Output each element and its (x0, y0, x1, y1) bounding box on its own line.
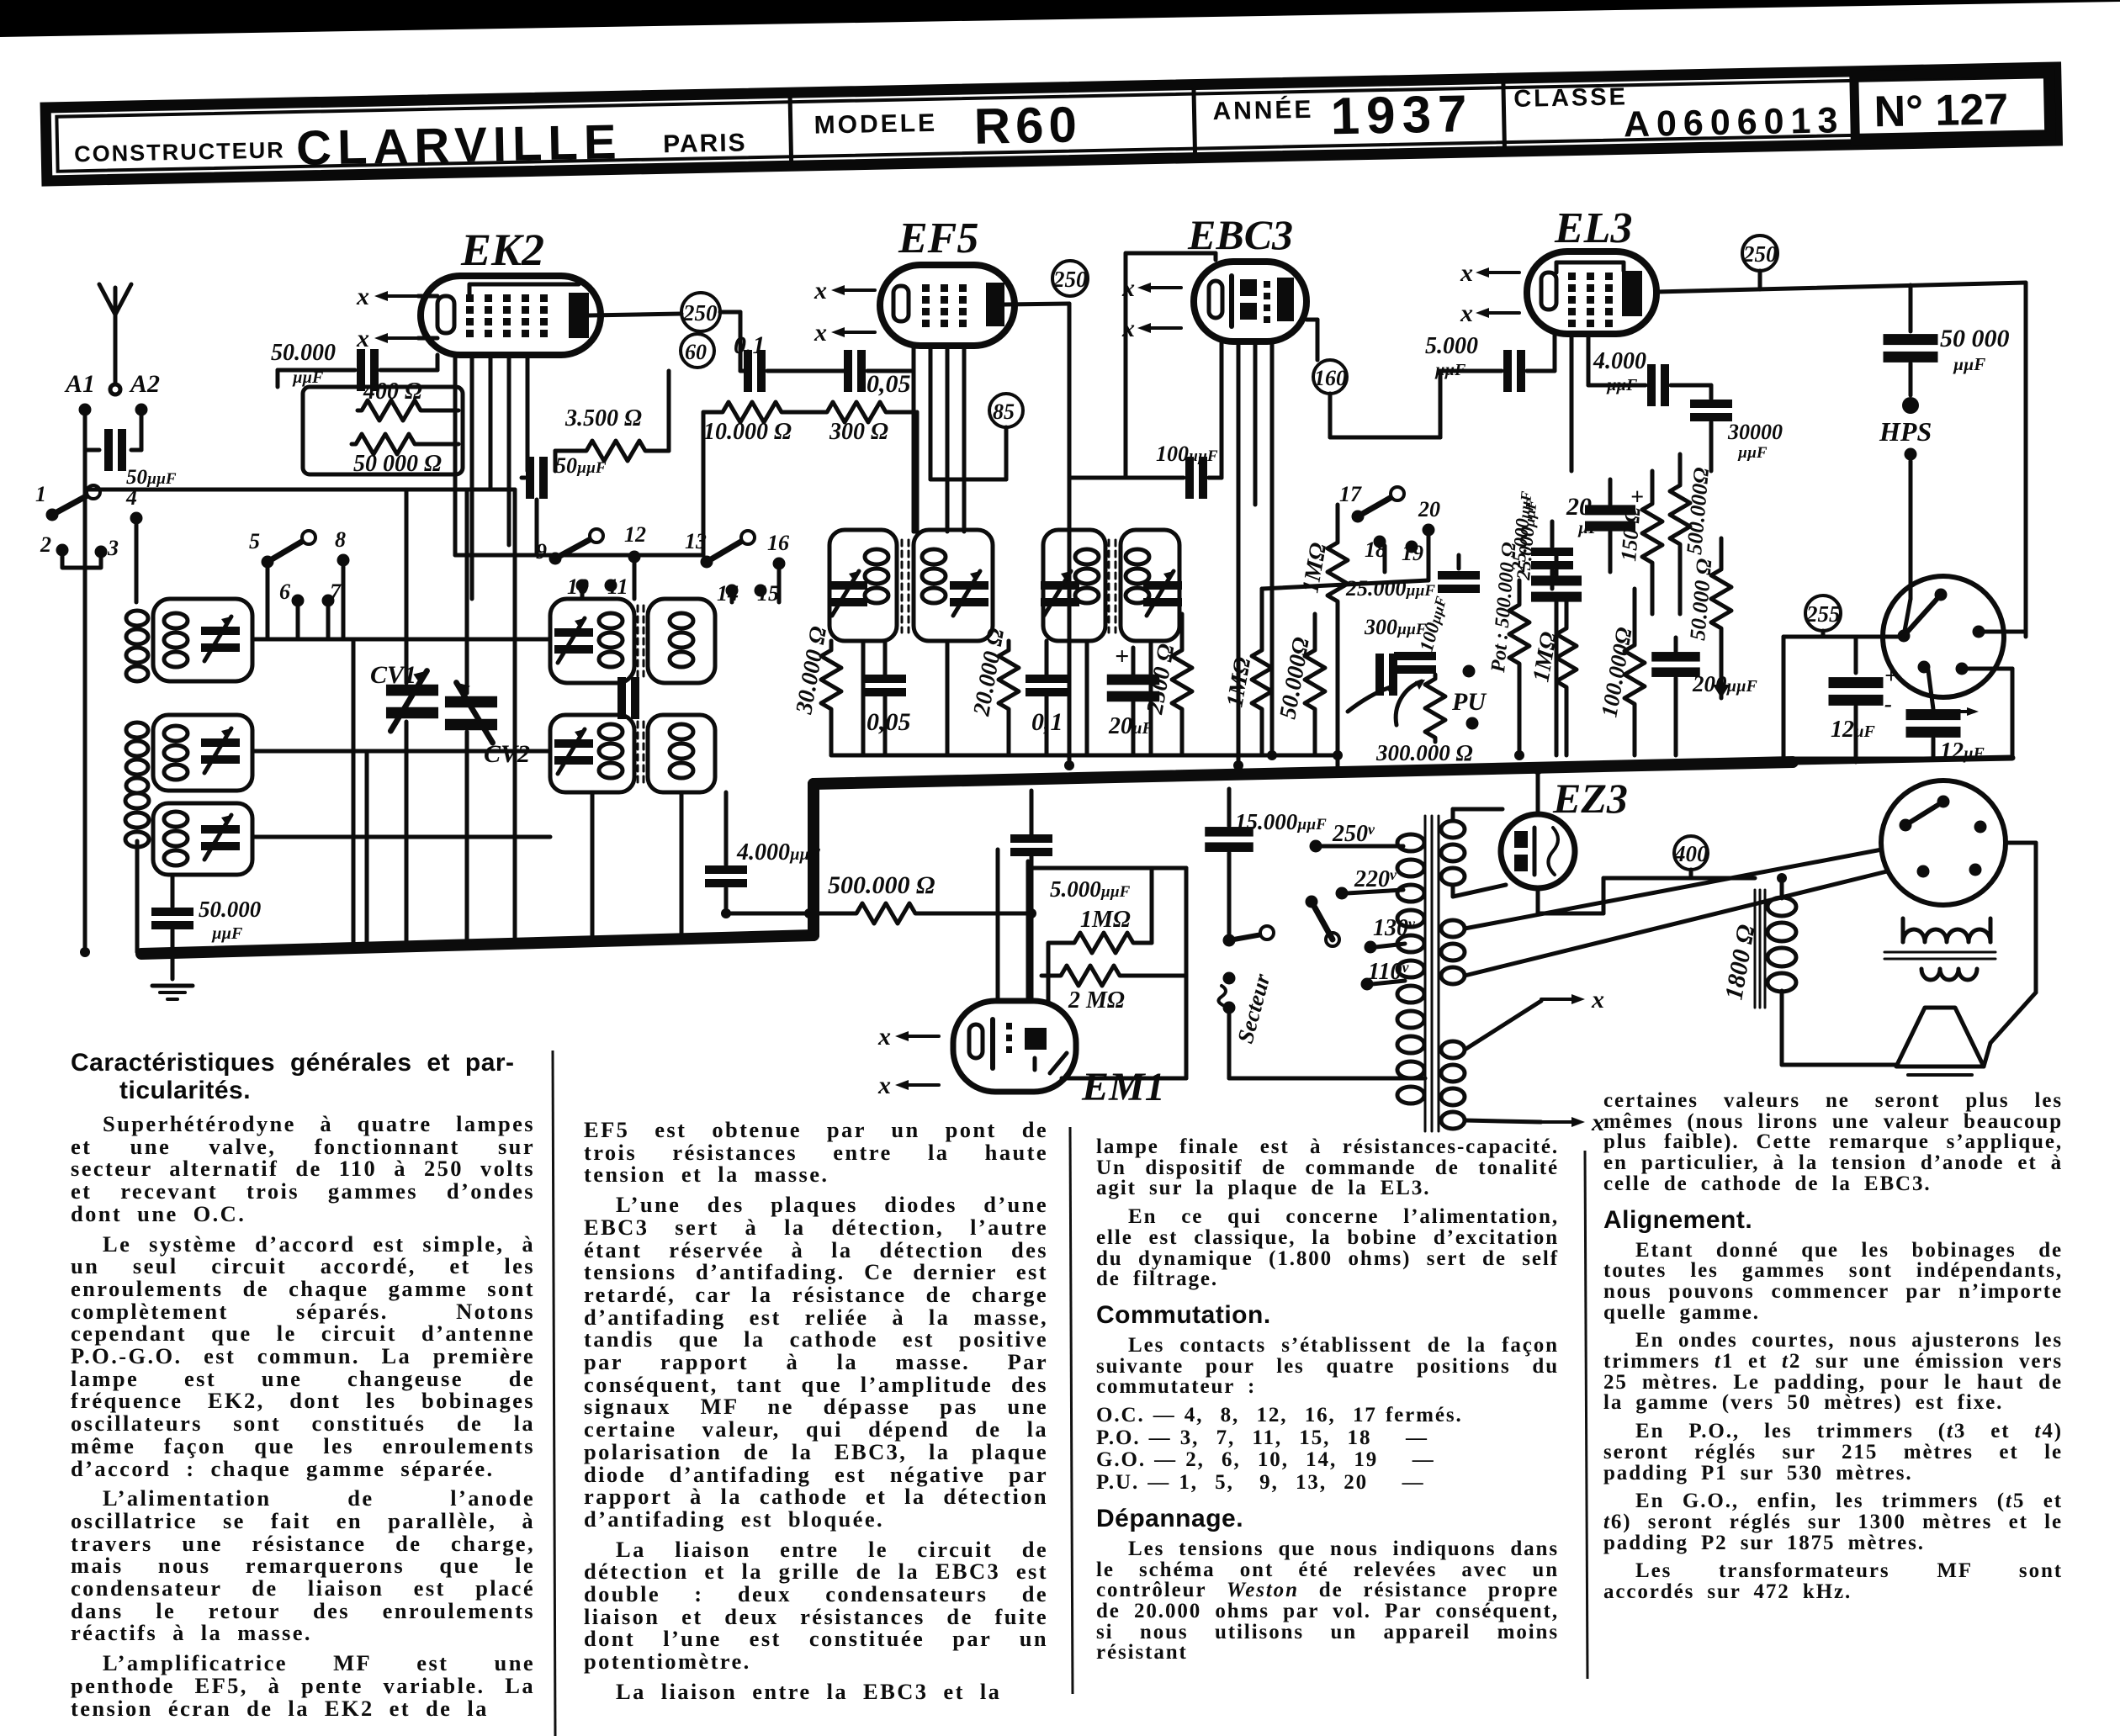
svg-text:50.000: 50.000 (199, 897, 262, 922)
svg-text:+: + (1884, 663, 1897, 688)
svg-text:x: x (356, 325, 369, 352)
svg-text:PARIS: PARIS (663, 129, 747, 158)
svg-text:160: 160 (1314, 366, 1347, 390)
svg-text:EK2: EK2 (460, 225, 544, 275)
svg-text:A0606013: A0606013 (1623, 100, 1844, 145)
svg-text:255: 255 (1805, 601, 1841, 627)
svg-text:EM1: EM1 (1081, 1065, 1165, 1109)
svg-text:PU: PU (1451, 688, 1487, 716)
svg-text:16: 16 (767, 531, 789, 555)
svg-text:85: 85 (993, 400, 1015, 424)
svg-text:0,05: 0,05 (867, 708, 911, 736)
svg-text:2: 2 (40, 532, 51, 557)
svg-text:17: 17 (1339, 482, 1362, 506)
svg-text:EF5: EF5 (898, 214, 978, 262)
svg-text:N° 127: N° 127 (1874, 85, 2009, 136)
svg-text:4.000: 4.000 (1593, 348, 1646, 374)
svg-text:5.000µµF: 5.000µµF (1050, 876, 1131, 902)
svg-text:x: x (814, 277, 827, 304)
svg-text:0,05: 0,05 (867, 370, 911, 398)
svg-text:250: 250 (1742, 241, 1778, 267)
svg-text:400: 400 (1673, 841, 1709, 866)
svg-text:x: x (1121, 315, 1135, 342)
svg-text:400 Ω: 400 Ω (363, 378, 422, 405)
svg-text:+: + (1115, 643, 1129, 670)
svg-text:200µµF: 200µµF (1692, 671, 1758, 696)
svg-text:EL3: EL3 (1554, 204, 1632, 252)
svg-text:x: x (1121, 274, 1135, 302)
svg-text:12µF: 12µF (1831, 717, 1876, 743)
svg-text:CLASSE: CLASSE (1513, 83, 1628, 113)
svg-text:30.000 Ω: 30.000 Ω (791, 624, 832, 717)
svg-text:50.000 Ω: 50.000 Ω (1685, 558, 1716, 642)
svg-text:µµF: µµF (292, 368, 324, 387)
svg-text:µµF: µµF (1953, 354, 1985, 374)
svg-text:500.000 Ω: 500.000 Ω (828, 871, 935, 899)
svg-text:6: 6 (279, 580, 290, 604)
svg-text:5.000: 5.000 (1425, 333, 1478, 359)
svg-text:Secteur: Secteur (1232, 971, 1275, 1045)
svg-text:150 Ω: 150 Ω (1616, 505, 1646, 562)
svg-text:12: 12 (624, 522, 646, 547)
svg-text:300µµF: 300µµF (1364, 615, 1427, 639)
svg-text:ANNÉE: ANNÉE (1212, 95, 1314, 125)
svg-text:100µµF: 100µµF (1156, 442, 1218, 466)
svg-text:µµF: µµF (211, 924, 243, 943)
svg-text:3: 3 (107, 536, 119, 560)
svg-text:300.000 Ω: 300.000 Ω (1375, 740, 1473, 765)
svg-text:-: - (1884, 691, 1892, 717)
svg-text:HPS: HPS (1879, 416, 1932, 447)
svg-text:x: x (877, 1023, 891, 1051)
svg-text:x: x (1460, 259, 1473, 287)
svg-text:MODELE: MODELE (814, 109, 937, 140)
svg-text:A2: A2 (129, 370, 160, 398)
svg-text:30000: 30000 (1727, 420, 1783, 444)
svg-text:CONSTRUCTEUR: CONSTRUCTEUR (74, 137, 285, 167)
svg-text:250: 250 (1052, 267, 1088, 292)
svg-text:50 000 Ω: 50 000 Ω (353, 451, 442, 477)
svg-text:3.500 Ω: 3.500 Ω (564, 405, 642, 431)
svg-text:250v: 250v (1332, 821, 1375, 847)
svg-text:CV2: CV2 (484, 740, 530, 768)
svg-text:8: 8 (335, 527, 346, 552)
svg-text:CLARVILLE: CLARVILLE (296, 114, 623, 176)
svg-text:300 Ω: 300 Ω (829, 419, 888, 445)
svg-text:x: x (814, 319, 827, 347)
svg-text:10.000 Ω: 10.000 Ω (703, 419, 792, 445)
svg-text:1937: 1937 (1330, 85, 1474, 146)
svg-text:250: 250 (682, 300, 718, 325)
svg-text:20: 20 (1418, 497, 1440, 521)
svg-text:+: + (1630, 484, 1644, 511)
svg-text:50µµF: 50µµF (555, 453, 607, 478)
svg-text:µµF: µµF (1737, 444, 1768, 462)
svg-text:2 MΩ: 2 MΩ (1068, 987, 1125, 1014)
svg-text:220v: 220v (1354, 866, 1397, 892)
svg-text:5: 5 (249, 529, 260, 553)
svg-text:x: x (1591, 1109, 1604, 1136)
svg-text:0,1: 0,1 (734, 331, 766, 359)
svg-text:x: x (356, 283, 369, 310)
svg-text:A1: A1 (64, 370, 95, 398)
svg-text:CV1: CV1 (370, 661, 416, 689)
svg-text:20µF: 20µF (1108, 713, 1154, 739)
svg-text:1: 1 (35, 482, 46, 506)
svg-text:500.000Ω: 500.000Ω (1682, 466, 1714, 555)
svg-text:50 000: 50 000 (1940, 325, 2010, 352)
svg-text:1MΩ: 1MΩ (1080, 907, 1131, 933)
svg-text:R60: R60 (973, 96, 1082, 155)
svg-text:60: 60 (685, 340, 707, 364)
svg-text:EZ3: EZ3 (1552, 775, 1628, 822)
svg-text:x: x (877, 1072, 891, 1099)
svg-text:x: x (1591, 986, 1604, 1014)
svg-text:50.000: 50.000 (271, 340, 336, 366)
svg-text:x: x (1460, 299, 1473, 327)
